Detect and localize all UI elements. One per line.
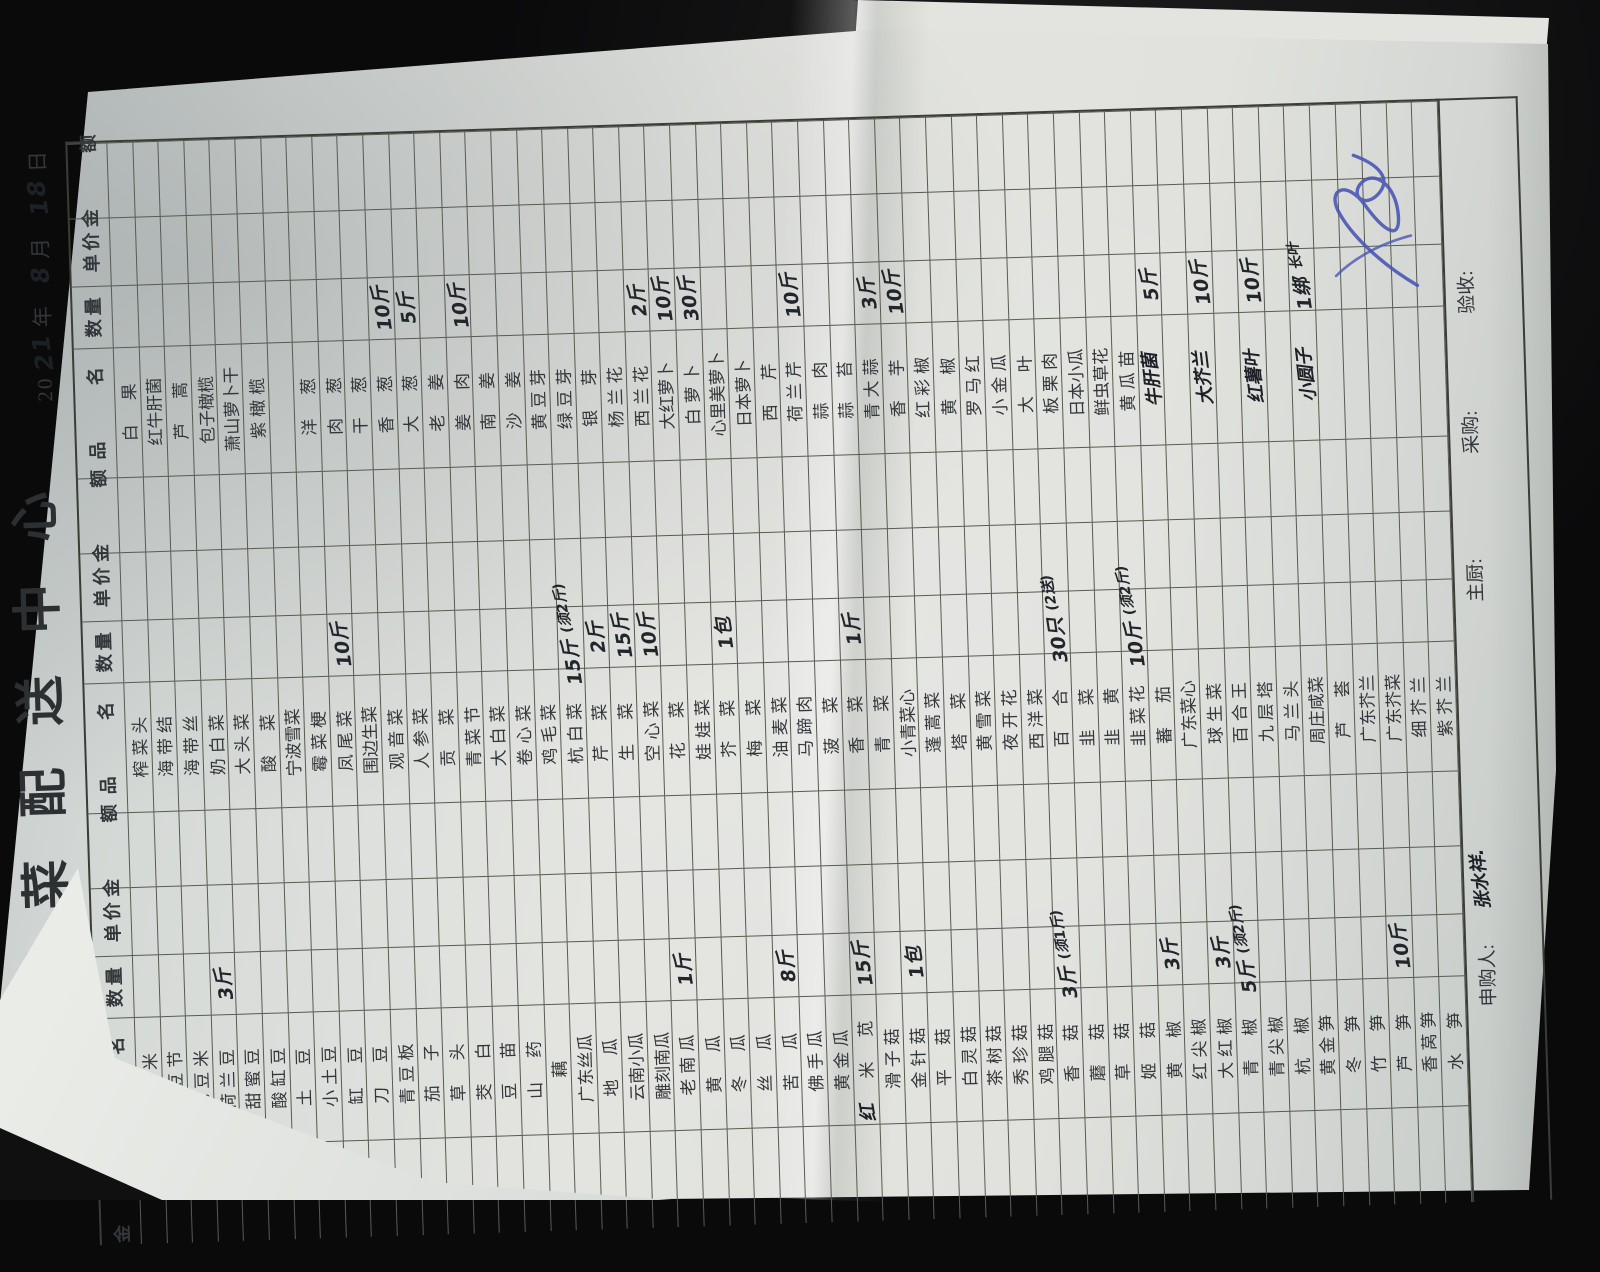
printed-item-name: 夜开花 [995, 684, 1022, 756]
printed-item-name: 土豆 [288, 1024, 316, 1131]
qty-cell [813, 598, 841, 661]
qty-cell [1376, 580, 1404, 643]
amount-cell-edge [1418, 1106, 1447, 1204]
unit-price-cell [1359, 848, 1387, 917]
handwritten-qty: 3斤 [207, 966, 239, 1002]
amount-cell-edge [727, 1128, 756, 1226]
qty-cell [1222, 585, 1250, 648]
handwritten-qty: 1包 [898, 944, 930, 980]
qty-cell [1335, 916, 1363, 979]
requester-signature: 张水祥. [1463, 848, 1496, 911]
printed-item-name: 姜肉 [447, 349, 475, 456]
unit-price-cell [632, 535, 660, 604]
handwritten-qty: 10斤 [1383, 922, 1417, 971]
amount-cell-edge [471, 1136, 500, 1234]
amount-cell [184, 139, 212, 215]
unit-price-cell [939, 526, 967, 595]
qty-cell [429, 610, 457, 673]
qty-cell: 1斤 [839, 597, 867, 660]
qty-cell [803, 263, 831, 326]
handwritten-qty: 3斤 [1154, 936, 1186, 972]
unit-price-cell [1246, 516, 1274, 585]
amount-cell [1397, 436, 1425, 512]
handwritten-qty: 1包 [708, 615, 740, 651]
amount-cell-edge [932, 1121, 961, 1219]
amount-cell [1371, 437, 1399, 513]
unit-price-cell [1286, 180, 1314, 249]
header-amount: 金 额 [88, 812, 130, 888]
qty-cell [496, 273, 524, 336]
amount-cell-edge [599, 1132, 628, 1230]
amount-cell [885, 452, 913, 528]
qty-cell: 30斤 [675, 267, 703, 330]
unit-price-cell [438, 877, 466, 946]
amount-cell [1243, 441, 1271, 517]
amount-cell [1177, 778, 1205, 854]
unit-price-cell [120, 551, 148, 620]
qty-cell [951, 929, 979, 992]
amount-cell [143, 476, 171, 552]
unit-price-cell [877, 193, 905, 262]
printed-item-name: 娃娃菜 [688, 694, 715, 766]
qty-cell [1105, 924, 1133, 987]
amount-cell [1054, 112, 1082, 188]
amount-cell [670, 124, 698, 200]
printed-item-name: 西芹 [753, 339, 781, 446]
qty-cell [1007, 256, 1035, 319]
qty-cell [276, 615, 304, 678]
qty-cell: 3斤 [210, 952, 238, 1015]
amount-cell [824, 119, 852, 195]
printed-item-name: 地瓜 [595, 1014, 623, 1121]
printed-item-name: 肉葱 [319, 353, 347, 460]
qty-cell [956, 258, 984, 321]
printed-item-name: 草菇 [1107, 998, 1135, 1105]
amount-cell [235, 138, 263, 214]
printed-item-name: 梅菜 [738, 675, 766, 782]
amount-cell [1331, 774, 1359, 850]
unit-price-cell [1005, 188, 1033, 257]
unit-price-cell [238, 213, 266, 282]
amount-cell-edge [1034, 1118, 1063, 1216]
printed-item-name: 绿豆芽 [549, 363, 576, 435]
amount-cell [205, 809, 233, 885]
unit-price-cell [442, 206, 470, 275]
amount-cell-edge [1111, 1116, 1140, 1214]
printed-item-name: 秀珍菇 [1005, 1019, 1032, 1091]
amount-cell-edge [1162, 1114, 1191, 1212]
unit-price-cell [949, 861, 977, 930]
unit-price-cell [745, 867, 773, 936]
printed-item-name: 芦蒿 [165, 357, 193, 464]
date-year-label: 年 [30, 304, 55, 328]
unit-price-cell [621, 201, 649, 270]
unit-price-cell [647, 200, 675, 269]
qty-cell [158, 953, 186, 1016]
amount-cell [435, 802, 463, 878]
qty-cell [1171, 586, 1199, 649]
qty-cell [517, 942, 545, 1005]
amount-cell [1131, 109, 1159, 185]
unit-price-cell [1184, 183, 1212, 252]
amount-cell [589, 797, 617, 873]
unit-price-cell [135, 216, 163, 285]
qty-cell [506, 607, 534, 670]
amount-cell [783, 456, 811, 532]
printed-item-name: 大白菜 [483, 700, 510, 772]
printed-item-name: 青豆板 [391, 1038, 418, 1110]
printed-item-name: 老姜 [421, 349, 449, 456]
inspector-blue-signature [1318, 143, 1433, 306]
amount-cell [1156, 109, 1184, 185]
amount-cell [645, 125, 673, 201]
handwritten-qty: 30斤 [671, 274, 705, 323]
amount-cell [1203, 778, 1231, 854]
unit-price-cell [770, 866, 798, 935]
printed-item-name: 青椒 [1235, 994, 1263, 1101]
unit-price-cell [847, 864, 875, 933]
unit-price-cell [489, 875, 517, 944]
printed-item-name: 黄金笋 [1312, 1009, 1339, 1081]
amount-cell [502, 464, 530, 540]
qty-cell [977, 928, 1005, 991]
qty-cell [992, 592, 1020, 655]
printed-item-name: 芦笋 [1388, 989, 1416, 1096]
amount-cell [1039, 448, 1067, 524]
printed-item-name: 小金瓜 [984, 349, 1011, 421]
unit-price-cell [171, 550, 199, 619]
amount-cell-edge [957, 1120, 986, 1218]
amount-cell [900, 117, 928, 193]
amount-cell-edge [1264, 1111, 1293, 1209]
amount-cell [286, 136, 314, 212]
printed-item-name: 马兰头 [1276, 675, 1303, 747]
unit-price-cell [709, 533, 737, 602]
amount-cell [1280, 775, 1308, 851]
printed-item-name: 大头菜 [227, 708, 254, 780]
amount-cell [476, 465, 504, 541]
qty-cell [112, 285, 140, 348]
qty-cell [1325, 582, 1353, 645]
unit-price-cell [1220, 517, 1248, 586]
printed-item-name: 香菜 [841, 671, 869, 778]
amount-cell [1254, 776, 1282, 852]
printed-item-name: 白灵菇 [954, 1021, 981, 1093]
printed-item-name: 青菜节 [458, 701, 485, 773]
unit-price-cell [1154, 854, 1182, 923]
printed-item-name: 香芋 [881, 335, 909, 442]
unit-price-cell [570, 202, 598, 271]
printed-item-name: 百合 [1045, 665, 1073, 772]
qty-cell [685, 602, 713, 665]
amount-cell [875, 118, 903, 194]
amount-cell [512, 799, 540, 875]
unit-price-cell [453, 541, 481, 610]
qty-cell [470, 273, 498, 336]
amount-cell [261, 137, 289, 213]
amount-cell [732, 457, 760, 533]
amount-cell [870, 788, 898, 864]
amount-cell [1305, 774, 1333, 850]
unit-price-cell [412, 877, 440, 946]
order-table: 金 额品 名数量单价金 额品 名数量单价金 额品 名数量单价金 额玉米榨菜头白果… [65, 99, 1474, 1246]
printed-item-name: 周庄咸菜 [1302, 676, 1329, 745]
printed-item-name: 米苋 [851, 996, 879, 1103]
form-date: 2021年 8月 18日 [22, 149, 60, 402]
handwritten-qty: 10斤 [441, 282, 475, 331]
qty-cell [491, 943, 519, 1006]
printed-item-name: 大红椒 [1210, 1012, 1237, 1084]
printed-item-name: 海带结 [151, 711, 178, 783]
printed-item-name: 贡菜 [431, 684, 459, 791]
printed-item-name: 九层塔 [1251, 676, 1278, 748]
qty-cell: 10斤 [879, 260, 907, 323]
amount-cell [1295, 440, 1323, 516]
qty-cell [1401, 579, 1429, 642]
unit-price-cell [161, 215, 189, 284]
header-qty: 数量 [82, 620, 124, 683]
qty-cell [982, 257, 1010, 320]
qty-cell: 1包 [900, 930, 928, 993]
amount-cell-edge [1367, 1108, 1396, 1206]
printed-item-name: 百合王 [1225, 677, 1252, 749]
printed-item-name: 宁波雪菜 [279, 708, 306, 777]
amount-cell [1003, 114, 1031, 190]
amount-cell [399, 468, 427, 544]
qty-cell: 3斤 [1156, 922, 1184, 985]
printed-item-name: 冬瓜 [723, 1010, 751, 1117]
unit-price-cell [775, 196, 803, 265]
unit-price-cell [862, 528, 890, 597]
amount-cell [742, 792, 770, 868]
amount-cell [793, 790, 821, 866]
amount-cell [107, 142, 135, 218]
amount-cell [809, 455, 837, 531]
amount-cell [1075, 782, 1103, 858]
printed-item-name: 青尖椒 [1261, 1011, 1288, 1083]
unit-price-cell [540, 873, 568, 942]
amount-cell-edge [625, 1131, 654, 1229]
unit-price-cell [110, 217, 138, 286]
qty-cell [316, 278, 344, 341]
qty-cell [1003, 927, 1031, 990]
printed-item-name: 黄金瓜 [826, 1025, 853, 1097]
unit-price-cell [836, 529, 864, 598]
printed-item-name: 云南小瓜 [622, 1032, 649, 1101]
qty-cell: 5斤(须2斤) [1233, 920, 1261, 983]
qty-cell: 30只(2送) [1043, 590, 1071, 653]
amount-cell [297, 471, 325, 547]
amount-cell [1269, 440, 1297, 516]
qty-cell [1058, 255, 1086, 318]
amount-cell [1192, 443, 1220, 519]
unit-price-cell [898, 862, 926, 931]
amount-cell [1028, 113, 1056, 189]
qty-cell [261, 950, 289, 1013]
unit-price-cell [376, 543, 404, 612]
header-amount: 金 额 [67, 142, 109, 218]
printed-item-name: 围边生菜 [355, 706, 382, 775]
amount-cell [425, 467, 453, 543]
amount-cell [158, 140, 186, 216]
qty-cell [1248, 584, 1276, 647]
amount-cell [461, 801, 489, 877]
qty-cell [1182, 921, 1210, 984]
amount-cell-edge [1341, 1108, 1370, 1206]
qty-cell [133, 954, 161, 1017]
unit-price-cell [1107, 185, 1135, 254]
amount-cell [696, 123, 724, 199]
amount-cell [307, 806, 335, 882]
amount-cell [271, 472, 299, 548]
unit-price-cell [964, 525, 992, 594]
printed-item-name: 刀豆 [365, 1022, 393, 1129]
printed-item-name: 青菜 [866, 671, 894, 778]
qty-cell [926, 929, 954, 992]
unit-price-cell [683, 534, 711, 603]
unit-price-cell [197, 549, 225, 618]
unit-price-cell [1195, 518, 1223, 587]
printed-item-name: 金针菇 [903, 1022, 930, 1094]
printed-item-name: 荷兰芹 [780, 356, 807, 428]
amount-cell [389, 133, 417, 209]
unit-price-cell [478, 540, 506, 609]
amount-cell [834, 454, 862, 530]
unit-price-cell [146, 551, 174, 620]
amount-cell-edge [804, 1125, 833, 1223]
qty-cell [598, 269, 626, 332]
unit-price-cell [642, 870, 670, 939]
unit-price-cell [340, 209, 368, 278]
amount-cell [195, 474, 223, 550]
printed-item-name: 生菜 [611, 679, 639, 786]
unit-price-cell [975, 860, 1003, 929]
amount-cell [231, 808, 259, 884]
amount-cell [487, 800, 515, 876]
handwritten-qty: 8斤 [770, 948, 802, 984]
qty-cell: 1包 [711, 601, 739, 664]
unit-price-cell [335, 880, 363, 949]
printed-item-name: 杭白菜 [560, 698, 587, 770]
amount-cell [798, 120, 826, 196]
printed-item-name: 大叶 [1009, 331, 1037, 438]
header-name: 品 名 [74, 347, 118, 478]
printed-item-name: 观音菜 [381, 703, 408, 775]
amount-cell [666, 794, 694, 870]
unit-price-cell [1169, 518, 1197, 587]
qty-cell [1273, 583, 1301, 646]
amount-cell [414, 132, 442, 208]
amount-cell [1258, 105, 1286, 181]
amount-cell [154, 811, 182, 887]
amount-cell [1233, 106, 1261, 182]
printed-item-name: 芦荟 [1327, 656, 1355, 763]
amount-cell [1356, 773, 1384, 849]
printed-item-name: 甜蜜豆 [238, 1043, 265, 1115]
qty-cell [828, 262, 856, 325]
amount-cell [118, 476, 146, 552]
printed-item-name: 滑子菇 [877, 1023, 904, 1095]
unit-price-cell [1159, 184, 1187, 253]
qty-cell [404, 611, 432, 674]
chef-label: 主厨: [1460, 558, 1488, 602]
printed-item-name: 酸缸豆 [263, 1042, 290, 1114]
printed-item-name: 草头 [442, 1019, 470, 1126]
handwritten-qty: 1斤 [836, 611, 868, 647]
unit-price-cell [1261, 180, 1289, 249]
amount-cell [1152, 779, 1180, 855]
requester-label: 申购人: [1472, 944, 1501, 1007]
unit-price-cell [1271, 515, 1299, 584]
qty-cell [696, 937, 724, 1000]
printed-item-name: 小土豆 [315, 1041, 342, 1113]
printed-item-name: 丝瓜 [749, 1009, 777, 1116]
amount-cell [757, 456, 785, 532]
qty-cell [163, 283, 191, 346]
printed-item-name: 平菇 [928, 1004, 956, 1111]
header-amount: 金 额 [78, 477, 120, 553]
date-day-handwritten: 18 [22, 176, 55, 217]
amount-cell-edge [1392, 1107, 1421, 1205]
qty-cell [338, 948, 366, 1011]
amount-cell [384, 803, 412, 879]
qty-cell: 5斤 [393, 276, 421, 339]
amount-cell [768, 791, 796, 867]
printed-item-name: 榨菜头 [125, 711, 152, 783]
qty-cell [240, 281, 268, 344]
printed-item-name: 日本小瓜 [1061, 348, 1088, 417]
printed-item-name: 广东芥兰 [1353, 674, 1380, 743]
qty-cell [547, 271, 575, 334]
printed-item-name: 蒜苔 [830, 337, 858, 444]
qty-cell [1412, 914, 1440, 977]
handwritten-item-name: 小圆子 [1289, 347, 1321, 404]
unit-price-cell [1256, 851, 1284, 920]
amount-cell [1320, 439, 1348, 515]
qty-cell [137, 284, 165, 347]
qty-cell [1033, 256, 1061, 319]
order-form: 蔬菜配送中心 2021年 8月 18日 金 额品 名数量单价金 额品 名数量单价… [0, 0, 1556, 1248]
unit-price-cell [1082, 186, 1110, 255]
qty-cell [353, 612, 381, 675]
unit-price-cell [468, 205, 496, 274]
amount-cell [921, 786, 949, 862]
unit-price-cell [314, 210, 342, 279]
printed-item-name: 西兰花 [626, 360, 653, 432]
unit-price-cell [749, 197, 777, 266]
printed-item-name: 红彩椒 [908, 352, 935, 424]
unit-price-cell [1282, 850, 1310, 919]
amount-cell [410, 802, 438, 878]
printed-item-name: 罗马红 [959, 350, 986, 422]
unit-price-cell [873, 863, 901, 932]
printed-item-name: 黄豆芽 [524, 364, 551, 436]
qty-cell [660, 603, 688, 666]
unit-price-cell [1399, 511, 1427, 580]
printed-item-name: 杭椒 [1286, 993, 1314, 1100]
qty-cell [572, 270, 600, 333]
printed-item-name: 红尖椒 [1184, 1013, 1211, 1085]
amount-cell-edge [676, 1129, 705, 1227]
amount-cell-edge [1137, 1115, 1166, 1213]
amount-cell-edge [830, 1124, 859, 1222]
amount-cell [655, 460, 683, 536]
qty-cell: 10斤 [777, 264, 805, 327]
printed-item-name: 广东菜心 [1174, 680, 1201, 749]
qty-cell: 10斤 [368, 277, 396, 340]
printed-item-name: 老南瓜 [673, 1029, 700, 1101]
amount-cell [1116, 445, 1144, 521]
